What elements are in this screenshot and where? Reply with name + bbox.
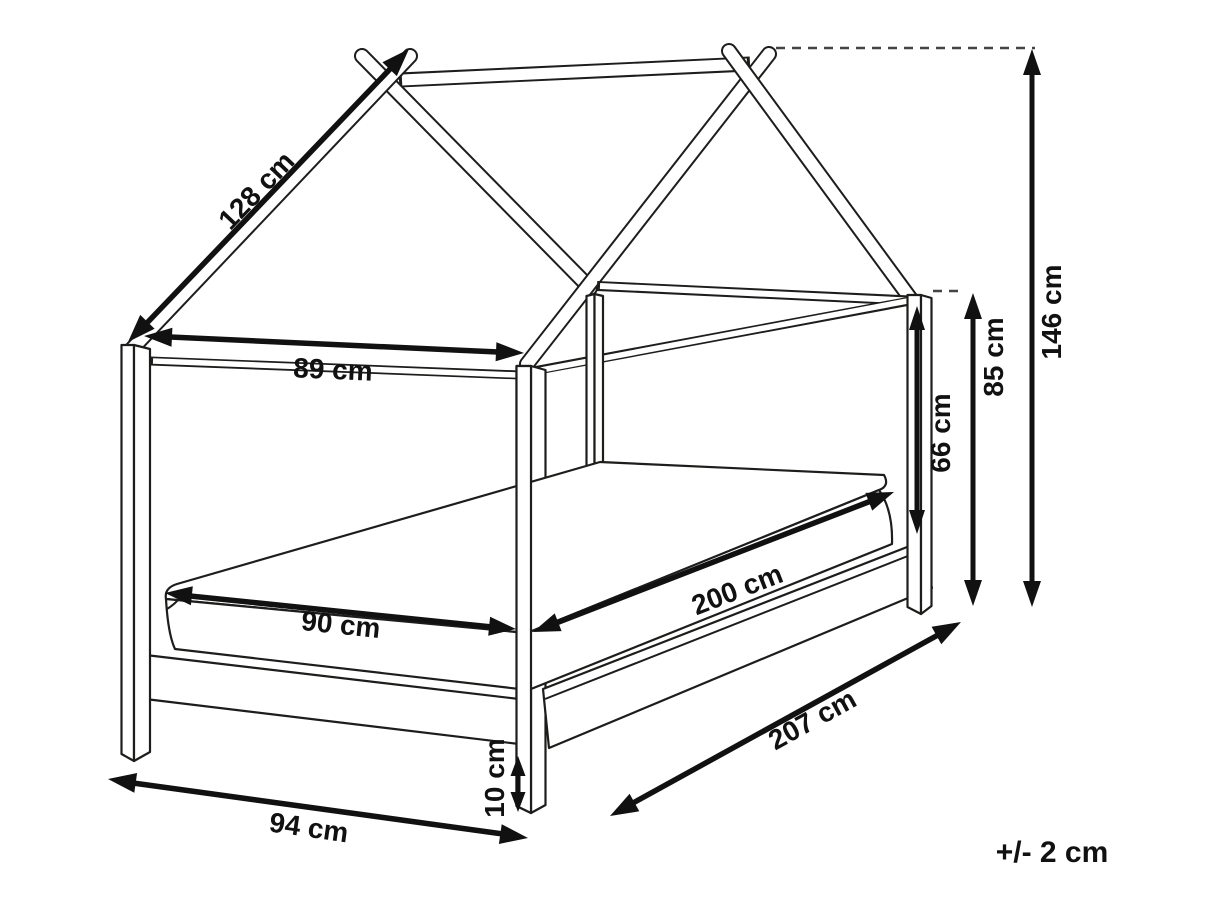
total-height-label: 146 cm xyxy=(1036,265,1067,360)
arrowhead xyxy=(499,824,528,844)
dimension-total-width: 94 cm xyxy=(108,773,528,848)
base-height-label: 10 cm xyxy=(479,738,510,817)
dimension-side-height: 85 cm xyxy=(964,293,1009,606)
arrowhead xyxy=(108,773,137,793)
dimension-roof-slope: 128 cm xyxy=(128,49,409,342)
total-length-label: 207 cm xyxy=(763,683,861,756)
post-side xyxy=(595,294,604,472)
dimension-line xyxy=(170,337,498,352)
tolerance-label: +/- 2 cm xyxy=(996,836,1109,869)
arrowhead xyxy=(964,580,982,606)
dimension-frame-inner-width: 89 cm xyxy=(144,328,524,387)
bed-dimension-diagram: 128 cm 89 cm 146 cm 85 cm 66 cm 200 cm 9… xyxy=(0,0,1214,911)
post-face xyxy=(517,366,532,813)
bed-technical-drawing: 128 cm 89 cm 146 cm 85 cm 66 cm 200 cm 9… xyxy=(0,0,1214,911)
arrowhead xyxy=(1023,49,1041,75)
arrowhead xyxy=(610,794,639,816)
foot-gable-header-core xyxy=(600,286,918,301)
side-height-label: 85 cm xyxy=(978,317,1009,396)
roof-beam-core xyxy=(362,56,590,288)
roof-beam-core xyxy=(131,56,410,350)
head-left-post xyxy=(122,345,151,761)
head-right-post-front xyxy=(517,366,532,813)
canopy-opening-height-label: 66 cm xyxy=(925,393,956,472)
arrowhead xyxy=(1023,581,1041,607)
roof-beam-core xyxy=(729,51,913,302)
roof-beam-core xyxy=(527,54,769,364)
foot-left-post xyxy=(587,294,604,472)
arrowhead xyxy=(964,293,982,319)
tolerance-note: +/- 2 cm xyxy=(996,836,1109,869)
arrowhead xyxy=(932,622,961,644)
frame-inner-width-label: 89 cm xyxy=(293,352,374,386)
post-face xyxy=(122,345,135,761)
arrowhead xyxy=(496,342,524,361)
post-face xyxy=(587,294,595,472)
post-side xyxy=(134,345,150,761)
dimension-total-height: 146 cm xyxy=(1023,49,1067,607)
